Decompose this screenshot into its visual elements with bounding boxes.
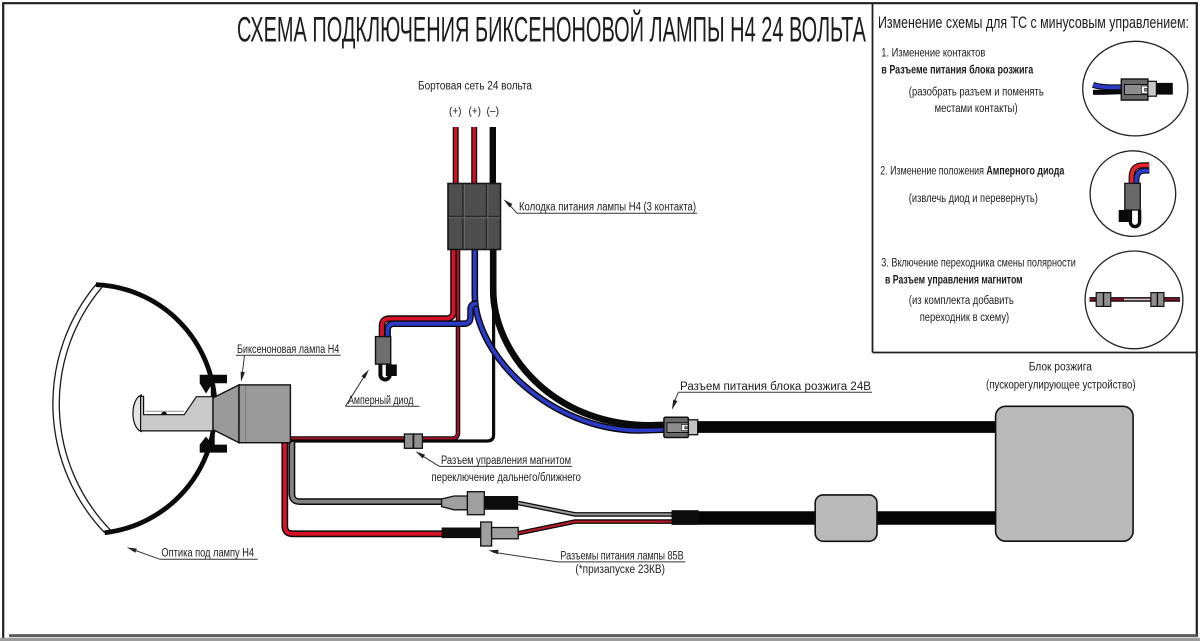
- svg-text:(*призапуске 23КВ): (*призапуске 23КВ): [575, 564, 665, 576]
- svg-text:(+): (+): [469, 106, 482, 118]
- svg-text:СХЕМА ПОДКЛЮЧЕНИЯ БИКСЕНОНОВОЙ: СХЕМА ПОДКЛЮЧЕНИЯ БИКСЕНОНОВОЙ ЛАМПЫ Н4 …: [237, 9, 866, 49]
- svg-text:местами контакты): местами контакты): [935, 103, 1018, 115]
- svg-text:2. Изменение положения Амперно: 2. Изменение положения Амперного диода: [880, 166, 1064, 178]
- svg-text:1. Изменение контактов: 1. Изменение контактов: [881, 47, 985, 59]
- svg-text:в Разъем управления магнитом: в Разъем управления магнитом: [885, 275, 1023, 287]
- svg-text:(+): (+): [449, 106, 462, 118]
- svg-text:переходник в схему): переходник в схему): [920, 312, 1010, 324]
- svg-text:Биксеноновая лампа Н4: Биксеноновая лампа Н4: [237, 344, 340, 356]
- svg-text:переключение дальнего/ближнего: переключение дальнего/ближнего: [432, 472, 581, 484]
- svg-text:(–): (–): [487, 106, 500, 118]
- svg-text:Блок розжига: Блок розжига: [1029, 361, 1093, 373]
- svg-text:(разобрать разъем и поменять: (разобрать разъем и поменять: [909, 87, 1044, 99]
- svg-text:Изменение схемы для ТС с минус: Изменение схемы для ТС с минусовым управ…: [878, 13, 1189, 32]
- svg-text:Разъем управления магнитом: Разъем управления магнитом: [441, 455, 571, 467]
- svg-text:3. Включение переходника смены: 3. Включение переходника смены полярност…: [881, 257, 1076, 269]
- svg-text:Разъемы питания лампы 85В: Разъемы питания лампы 85В: [560, 550, 683, 562]
- svg-text:(пускорегулирующее устройство): (пускорегулирующее устройство): [986, 379, 1136, 391]
- svg-text:Оптика под лампу Н4: Оптика под лампу Н4: [161, 548, 254, 560]
- svg-text:(извлечь диод и перевернуть): (извлечь диод и перевернуть): [909, 193, 1038, 205]
- svg-text:(из комплекта добавить: (из комплекта добавить: [909, 295, 1014, 307]
- svg-text:в Разъеме питания блока розжиг: в Разъеме питания блока розжига: [881, 65, 1033, 77]
- svg-text:Разъем питания блока розжига 2: Разъем питания блока розжига 24В: [680, 381, 871, 393]
- svg-text:Колодка питания лампы Н4 (3 ко: Колодка питания лампы Н4 (3 контакта): [519, 202, 696, 214]
- svg-text:Бортовая сеть 24 вольта: Бортовая сеть 24 вольта: [418, 81, 533, 93]
- svg-text:Амперный диод: Амперный диод: [348, 395, 414, 407]
